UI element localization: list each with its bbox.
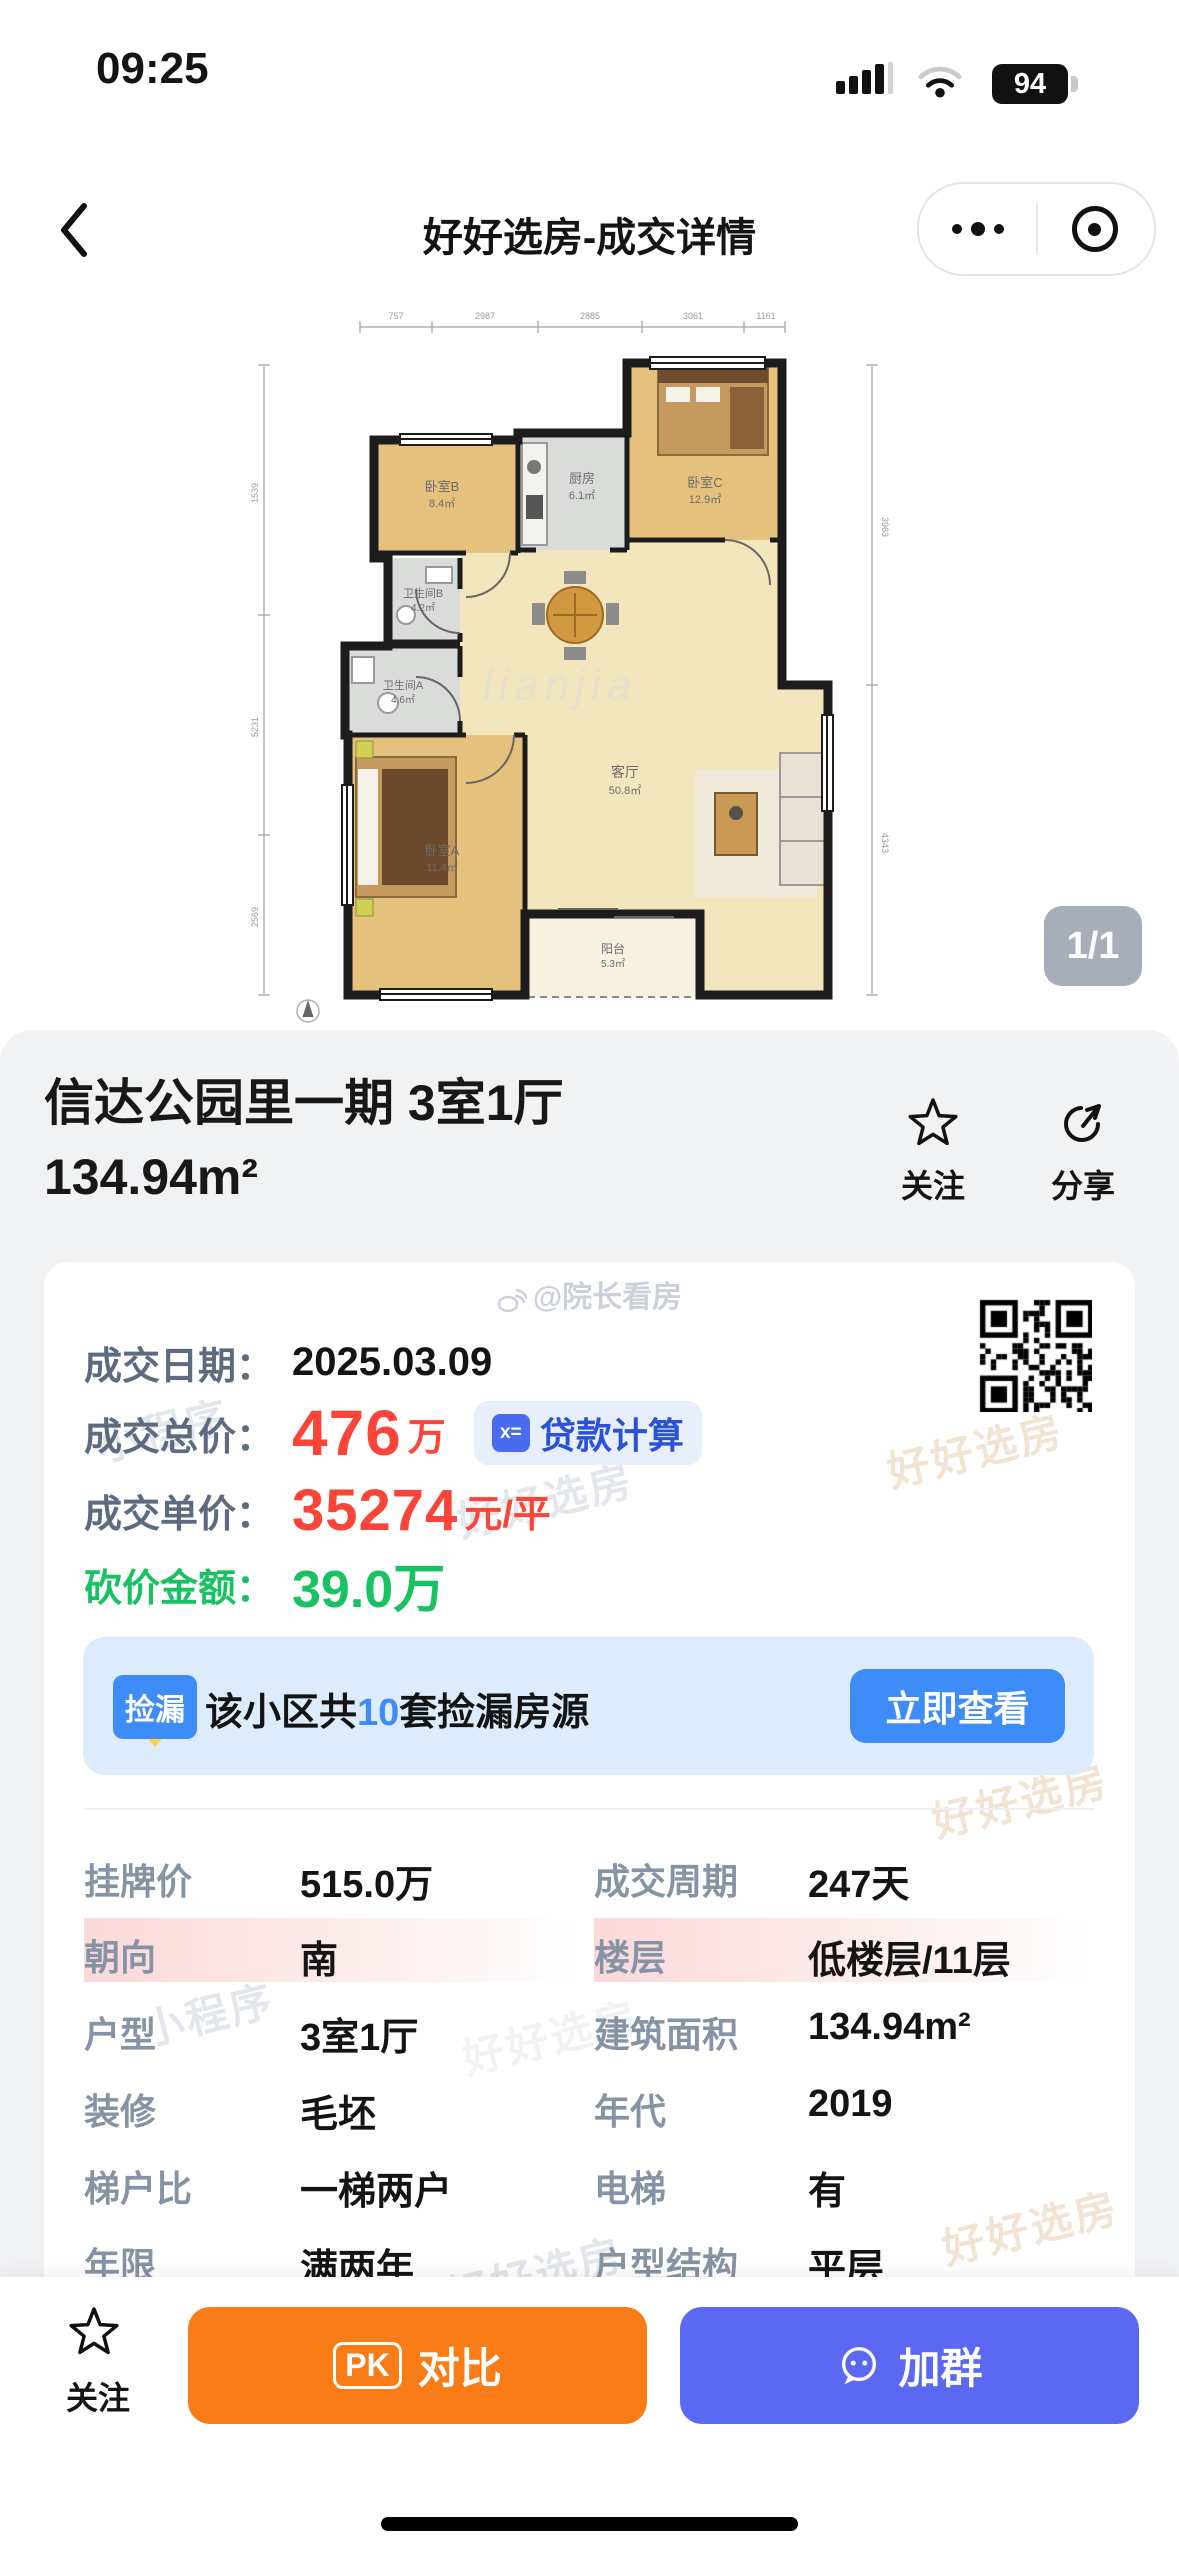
bargain-banner[interactable]: 捡漏 该小区共10套捡漏房源 立即查看 [83, 1637, 1094, 1775]
table-row: 年限 满两年 户型结构 平层 [0, 2237, 1179, 2281]
svg-text:4.6㎡: 4.6㎡ [391, 694, 415, 706]
deal-discount-value: 39.0万 [292, 1547, 445, 1622]
svg-text:卫生间B: 卫生间B [403, 586, 443, 600]
screen: 09:25 94 好好选房-成交详情 [0, 0, 1179, 2556]
table-row: 梯户比 一梯两户 电梯 有 [0, 2160, 1179, 2204]
loan-calculator-button[interactable]: x= 贷款计算 [474, 1401, 702, 1465]
weibo-icon [497, 1287, 527, 1313]
star-icon [68, 2305, 120, 2357]
svg-text:5.3㎡: 5.3㎡ [601, 958, 625, 970]
follow-button[interactable]: 关注 [878, 1096, 988, 1207]
follow-label: 关注 [878, 1161, 988, 1207]
svg-text:5231: 5231 [250, 717, 260, 737]
divider [84, 1808, 1095, 1810]
star-icon [907, 1096, 959, 1148]
wifi-icon [916, 62, 964, 103]
svg-text:50.8㎡: 50.8㎡ [609, 784, 641, 797]
qr-code [978, 1298, 1092, 1412]
property-area: 134.94m² [44, 1140, 864, 1214]
svg-text:2885: 2885 [580, 311, 600, 321]
floorplan-image[interactable]: 卧室B 8.4㎡ 厨房 6.1㎡ 卧室C 12.9㎡ 卫生间B 4.2㎡ 卫生间… [170, 195, 1010, 1025]
svg-text:卧室A: 卧室A [425, 843, 460, 858]
chat-bubble-icon [836, 2343, 882, 2389]
pk-icon: PK [333, 2342, 401, 2389]
join-group-button[interactable]: 加群 [680, 2307, 1139, 2424]
view-now-button[interactable]: 立即查看 [850, 1669, 1065, 1743]
compare-label: 对比 [418, 2335, 502, 2396]
plan-brand-watermark: lianjia [483, 661, 638, 710]
table-row: 挂牌价 515.0万 成交周期 247天 [0, 1853, 1179, 1897]
deal-unitprice-unit: 元/平 [464, 1483, 551, 1538]
svg-text:2987: 2987 [475, 311, 495, 321]
svg-text:11.4㎡: 11.4㎡ [426, 861, 458, 874]
svg-text:3061: 3061 [683, 311, 703, 321]
svg-text:1539: 1539 [250, 483, 260, 503]
svg-text:厨房: 厨房 [569, 471, 595, 486]
property-name: 信达公园里一期 3室1厅 [44, 1066, 864, 1140]
battery-icon: 94 [992, 64, 1068, 104]
property-title: 信达公园里一期 3室1厅 134.94m² [44, 1066, 864, 1214]
image-page-indicator: 1/1 [1044, 906, 1142, 986]
bottom-follow-button[interactable] [68, 2305, 120, 2362]
share-button[interactable]: 分享 [1028, 1096, 1138, 1207]
svg-text:12.9㎡: 12.9㎡ [689, 493, 721, 506]
compare-button[interactable]: PK 对比 [188, 2307, 647, 2424]
svg-text:2569: 2569 [250, 907, 260, 927]
svg-text:阳台: 阳台 [601, 941, 625, 956]
cellular-signal-icon [836, 60, 893, 94]
svg-text:客厅: 客厅 [611, 764, 639, 780]
svg-text:卧室C: 卧室C [687, 475, 722, 490]
home-indicator[interactable] [381, 2517, 798, 2531]
battery-nub [1071, 76, 1078, 92]
deal-total-unit: 万 [408, 1406, 446, 1461]
deal-discount-row: 砍价金额： 39.0万 [84, 1554, 445, 1614]
share-label: 分享 [1028, 1161, 1138, 1207]
bottom-action-bar: 关注 PK 对比 加群 [0, 2277, 1179, 2556]
calculator-icon: x= [492, 1414, 530, 1452]
close-circle-button[interactable] [1036, 206, 1153, 252]
loan-calculator-label: 贷款计算 [540, 1407, 684, 1459]
table-row: 装修 毛坯 年代 2019 [0, 2083, 1179, 2127]
share-icon [1057, 1096, 1109, 1148]
svg-text:卫生间A: 卫生间A [383, 678, 424, 692]
deal-discount-label: 砍价金额： [84, 1557, 274, 1612]
bargain-count: 10 [357, 1692, 399, 1734]
deal-total-value: 476 [292, 1396, 402, 1470]
deal-unitprice-row: 成交单价： 35274 元/平 [84, 1478, 551, 1542]
room-label: 卧室B [425, 479, 460, 494]
table-row: 朝向 南 楼层 低楼层/11层 [0, 1929, 1179, 1973]
deal-date-label: 成交日期： [84, 1335, 274, 1390]
status-time: 09:25 [96, 44, 209, 94]
svg-text:1161: 1161 [756, 311, 775, 321]
svg-text:4343: 4343 [880, 833, 890, 853]
join-group-label: 加群 [898, 2335, 982, 2396]
capsule-divider [1036, 203, 1038, 255]
deal-total-label: 成交总价： [84, 1406, 274, 1461]
deal-unitprice-label: 成交单价： [84, 1483, 274, 1538]
deal-unitprice-value: 35274 [292, 1477, 458, 1544]
bargain-badge: 捡漏 [113, 1675, 197, 1739]
deal-date-value: 2025.03.09 [292, 1340, 492, 1385]
svg-text:8.4㎡: 8.4㎡ [429, 497, 455, 510]
table-row: 户型 3室1厅 建筑面积 134.94m² [0, 2006, 1179, 2050]
bottom-follow-label: 关注 [38, 2373, 158, 2419]
svg-text:3963: 3963 [880, 517, 890, 537]
svg-text:6.1㎡: 6.1㎡ [569, 489, 595, 502]
banner-text: 该小区共10套捡漏房源 [205, 1681, 589, 1736]
svg-text:757: 757 [388, 311, 403, 321]
deal-date-row: 成交日期： 2025.03.09 [84, 1330, 492, 1394]
svg-text:4.2㎡: 4.2㎡ [411, 602, 435, 614]
deal-total-row: 成交总价： 476 万 x= 贷款计算 [84, 1398, 702, 1468]
